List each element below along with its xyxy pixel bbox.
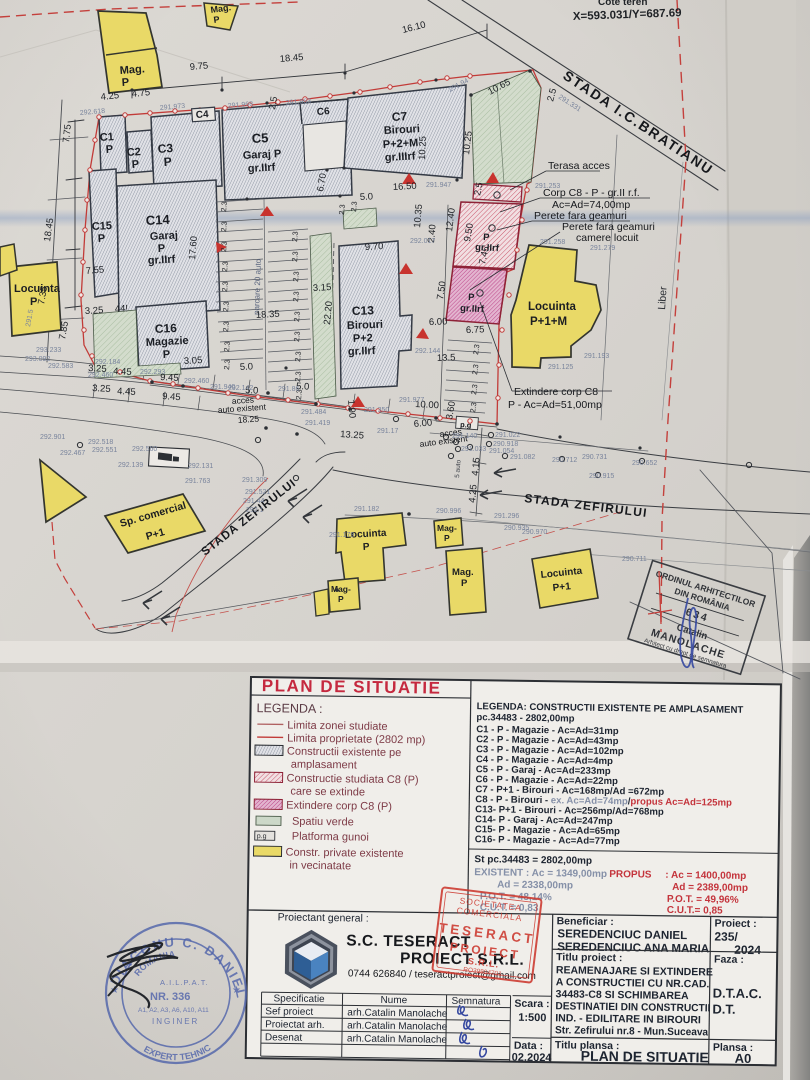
svg-text:2.3: 2.3 <box>219 241 229 252</box>
svg-text:care se extinde: care se extinde <box>290 786 365 799</box>
svg-text:Desenat: Desenat <box>265 1032 303 1044</box>
svg-text:P: P <box>338 594 344 604</box>
svg-text:291.296: 291.296 <box>494 513 519 520</box>
svg-text:P: P <box>131 159 139 171</box>
svg-text:P+1: P+1 <box>552 581 572 594</box>
svg-text:291.279: 291.279 <box>590 245 615 252</box>
svg-text:17.60: 17.60 <box>187 236 200 261</box>
svg-text:2.3: 2.3 <box>291 291 301 302</box>
svg-text:292.901: 292.901 <box>40 434 65 441</box>
svg-text:Spatiu verde: Spatiu verde <box>292 816 354 829</box>
svg-text:290.918: 290.918 <box>493 441 518 448</box>
svg-text:2.3: 2.3 <box>290 251 300 262</box>
svg-text:293.092: 293.092 <box>25 356 50 363</box>
svg-text:Data :: Data : <box>514 1040 543 1052</box>
svg-text:★: ★ <box>232 985 241 996</box>
svg-text:gr.IIrf: gr.IIrf <box>348 345 376 358</box>
svg-text:C.U.T.= 0,85: C.U.T.= 0,85 <box>667 905 723 917</box>
svg-text:291.521: 291.521 <box>245 489 270 496</box>
svg-text:Beneficiar :: Beneficiar : <box>557 915 614 928</box>
svg-text:C13: C13 <box>352 303 375 318</box>
svg-text:292.144: 292.144 <box>415 348 440 355</box>
svg-text:2.3: 2.3 <box>470 364 480 376</box>
svg-text:290.652: 290.652 <box>632 460 657 467</box>
svg-text:291.258: 291.258 <box>540 239 565 246</box>
svg-text:Mag.: Mag. <box>452 567 474 578</box>
svg-text:292.560: 292.560 <box>132 446 157 453</box>
svg-text:4.45: 4.45 <box>113 366 132 378</box>
svg-text:2.3: 2.3 <box>469 384 479 396</box>
svg-text:2.3: 2.3 <box>293 371 303 382</box>
svg-text:290.711: 290.711 <box>622 556 647 563</box>
svg-text:291.17: 291.17 <box>377 428 399 435</box>
svg-text:P - Ac=Ad=51,00mp: P - Ac=Ad=51,00mp <box>508 399 602 411</box>
svg-text:4.45: 4.45 <box>117 386 136 398</box>
svg-text:9.45: 9.45 <box>162 391 181 403</box>
svg-text:292.583: 292.583 <box>48 363 73 370</box>
svg-text:291.179: 291.179 <box>329 532 354 539</box>
svg-text:291.309: 291.309 <box>242 477 267 484</box>
svg-text:3.25: 3.25 <box>92 383 111 395</box>
svg-text:gr.IIrf: gr.IIrf <box>148 254 176 267</box>
svg-text:P: P <box>461 578 468 589</box>
svg-text:Proiectat arh.: Proiectat arh. <box>265 1019 325 1031</box>
svg-text:291.419: 291.419 <box>305 420 330 427</box>
svg-text:292.1: 292.1 <box>246 507 264 514</box>
svg-text:P+1+M: P+1+M <box>530 316 567 328</box>
svg-text:2.3: 2.3 <box>219 221 229 232</box>
svg-text:10.35: 10.35 <box>412 204 425 229</box>
svg-text:Magazie: Magazie <box>146 335 189 349</box>
svg-text:gr.IIIrf: gr.IIIrf <box>385 150 416 164</box>
svg-text:pc.34483 - 2802,00mp: pc.34483 - 2802,00mp <box>476 712 574 724</box>
svg-text:Limita zonei studiate: Limita zonei studiate <box>287 720 387 733</box>
svg-text:291.033: 291.033 <box>461 446 486 453</box>
svg-text:290.970: 290.970 <box>522 529 547 536</box>
svg-text:arh.Catalin Manolache: arh.Catalin Manolache <box>347 1020 448 1032</box>
svg-text:2.3: 2.3 <box>337 204 347 215</box>
svg-text:6.00: 6.00 <box>413 417 432 430</box>
svg-text:2.3: 2.3 <box>220 281 230 292</box>
svg-text:291.977: 291.977 <box>399 397 424 404</box>
svg-text:PROPUS: PROPUS <box>609 869 652 881</box>
svg-text:2.3: 2.3 <box>293 351 303 362</box>
svg-text:C16- P - Magazie - Ac=Ad=77mp: C16- P - Magazie - Ac=Ad=77mp <box>475 834 620 847</box>
svg-text:INGINER: INGINER <box>152 1017 199 1026</box>
svg-text:2.3: 2.3 <box>221 321 231 332</box>
svg-text:2.3: 2.3 <box>219 201 229 212</box>
svg-text:3.25: 3.25 <box>85 305 104 317</box>
svg-text:Cote teren: Cote teren <box>598 0 647 8</box>
svg-text:291.182: 291.182 <box>354 506 379 513</box>
svg-text:2.3: 2.3 <box>221 301 231 312</box>
svg-text:LEGENDA :: LEGENDA : <box>256 701 322 716</box>
svg-text:291.022: 291.022 <box>495 432 520 439</box>
svg-text:PLAN DE SITUATIE: PLAN DE SITUATIE <box>262 676 442 698</box>
svg-text:18.25: 18.25 <box>237 414 259 425</box>
svg-text:290.915: 290.915 <box>589 473 614 480</box>
svg-text:Ad = 2338,00mp: Ad = 2338,00mp <box>497 879 573 891</box>
svg-text:292.460: 292.460 <box>184 378 209 385</box>
svg-text:D.T.A.C.: D.T.A.C. <box>713 985 762 1001</box>
svg-text:5.0: 5.0 <box>240 361 254 373</box>
svg-text:Proiect :: Proiect : <box>715 917 757 930</box>
svg-text:291.350: 291.350 <box>364 407 389 414</box>
svg-text:292.467: 292.467 <box>60 450 85 457</box>
svg-text:5.0: 5.0 <box>360 191 374 203</box>
svg-text:C2: C2 <box>126 146 141 159</box>
svg-text:Str. Zefirului nr.8 - Mun.Suce: Str. Zefirului nr.8 - Mun.Suceava <box>555 1024 708 1038</box>
svg-text:291.763: 291.763 <box>185 478 210 485</box>
svg-text:Scara :: Scara : <box>514 998 549 1010</box>
svg-text:A0: A0 <box>735 1051 752 1066</box>
svg-text:290.996: 290.996 <box>436 508 461 515</box>
svg-text:p.g: p.g <box>257 833 267 840</box>
svg-text:Locuinta: Locuinta <box>528 301 577 313</box>
svg-text:P: P <box>121 77 129 89</box>
svg-text:291.125: 291.125 <box>548 364 573 371</box>
svg-text:2.3: 2.3 <box>291 271 301 282</box>
svg-text:2.3: 2.3 <box>292 311 302 322</box>
svg-text:Mag.: Mag. <box>119 63 145 77</box>
svg-text:C16: C16 <box>154 321 177 336</box>
svg-text:291.484: 291.484 <box>301 409 326 416</box>
svg-text:292.017: 292.017 <box>410 238 435 245</box>
svg-text:2.3: 2.3 <box>292 331 302 342</box>
svg-text:P: P <box>163 154 172 169</box>
svg-text:Sef proiect: Sef proiect <box>265 1006 313 1018</box>
svg-text:SEREDENCIUC DANIEL: SEREDENCIUC DANIEL <box>557 928 687 942</box>
svg-text:p.g: p.g <box>460 420 472 430</box>
svg-text:9.70: 9.70 <box>365 241 384 253</box>
svg-text:camere locuit: camere locuit <box>576 232 639 244</box>
svg-text:EXISTENT : Ac = 1349,00mp: EXISTENT : Ac = 1349,00mp <box>474 867 607 880</box>
svg-text:3.05: 3.05 <box>184 355 203 367</box>
svg-text:Extindere corp C8 (P): Extindere corp C8 (P) <box>286 800 392 813</box>
svg-text:292.293: 292.293 <box>140 369 165 376</box>
svg-text:Specificatie: Specificatie <box>273 993 325 1005</box>
svg-text:in vecinatate: in vecinatate <box>289 860 351 873</box>
svg-text:gr.IIrf: gr.IIrf <box>248 162 276 175</box>
svg-text:arh.Catalin Manolache: arh.Catalin Manolache <box>347 1033 448 1045</box>
svg-text:2.3: 2.3 <box>349 201 359 212</box>
svg-text:Mag-: Mag- <box>437 523 457 533</box>
svg-text:amplasament: amplasament <box>291 759 357 772</box>
svg-text:2.3: 2.3 <box>222 359 232 370</box>
svg-text:292.139: 292.139 <box>118 462 143 469</box>
svg-text:P+2+M: P+2+M <box>383 137 419 151</box>
svg-text:NR. 336: NR. 336 <box>150 991 190 1003</box>
svg-text:PLAN DE SITUATIE: PLAN DE SITUATIE <box>581 1048 709 1066</box>
svg-text:C14: C14 <box>145 212 170 228</box>
svg-text:Titlu proiect :: Titlu proiect : <box>556 951 622 964</box>
svg-text:13.25: 13.25 <box>340 429 364 442</box>
svg-text:Terasa acces: Terasa acces <box>548 160 610 172</box>
svg-text:P: P <box>163 349 171 361</box>
svg-text:Birouri: Birouri <box>384 123 421 137</box>
svg-text:C7: C7 <box>391 109 407 124</box>
svg-text:P: P <box>363 542 371 553</box>
svg-text:Garaj P: Garaj P <box>243 148 282 162</box>
svg-text:: Ac = 1400,00mp: : Ac = 1400,00mp <box>665 870 746 882</box>
svg-text:C4: C4 <box>195 109 209 121</box>
svg-text:A.I.L.P.A.T.: A.I.L.P.A.T. <box>160 978 209 987</box>
svg-text:291.253: 291.253 <box>535 183 560 190</box>
svg-text:291.86: 291.86 <box>278 386 300 393</box>
svg-text:9.75: 9.75 <box>189 60 208 73</box>
svg-text:18.45: 18.45 <box>279 52 304 65</box>
svg-text:1:500: 1:500 <box>518 1012 546 1024</box>
svg-text:★: ★ <box>110 985 119 996</box>
svg-text:4.15: 4.15 <box>470 457 483 476</box>
svg-text:Liber: Liber <box>656 286 670 311</box>
svg-text:2.3: 2.3 <box>471 344 481 356</box>
svg-text:Ad = 2389,00mp: Ad = 2389,00mp <box>672 882 748 894</box>
svg-text:P+2: P+2 <box>353 332 373 345</box>
svg-text:290.731: 290.731 <box>582 454 607 461</box>
svg-text:4.25: 4.25 <box>467 484 480 503</box>
svg-text:2.3: 2.3 <box>468 402 478 414</box>
svg-text:292.551: 292.551 <box>92 447 117 454</box>
svg-text:16.50: 16.50 <box>393 181 417 193</box>
svg-text:C1: C1 <box>99 131 114 144</box>
svg-text:Extindere corp C8: Extindere corp C8 <box>514 386 598 398</box>
svg-text:291.940: 291.940 <box>210 384 235 391</box>
svg-text:Constr. private existente: Constr. private existente <box>285 847 403 861</box>
svg-text:Constructie studiata C8 (P): Constructie studiata C8 (P) <box>287 773 419 787</box>
svg-text:C3: C3 <box>157 141 174 156</box>
svg-text:P: P <box>98 233 106 245</box>
svg-text:10.25: 10.25 <box>417 136 429 160</box>
svg-text:4.25: 4.25 <box>100 90 120 103</box>
svg-text:Faza :: Faza : <box>714 953 744 965</box>
svg-text:291.140: 291.140 <box>452 433 477 440</box>
svg-text:Mag-: Mag- <box>331 584 351 594</box>
svg-text:235/: 235/ <box>714 929 738 943</box>
svg-text:2.5: 2.5 <box>267 96 280 111</box>
svg-text:292.131: 292.131 <box>188 463 213 470</box>
svg-text:arh.Catalin Manolache: arh.Catalin Manolache <box>347 1007 448 1019</box>
svg-text:St pc.34483 = 2802,00mp: St pc.34483 = 2802,00mp <box>474 854 592 867</box>
svg-text:292.460: 292.460 <box>88 372 113 379</box>
svg-text:4.75: 4.75 <box>131 87 151 100</box>
svg-text:C5: C5 <box>251 130 268 146</box>
svg-text:P: P <box>158 243 166 255</box>
svg-text:291.947: 291.947 <box>426 182 451 189</box>
svg-text:291.44: 291.44 <box>243 498 265 505</box>
svg-text:P: P <box>105 144 113 156</box>
svg-text:C6: C6 <box>316 106 330 118</box>
svg-text:D.T.: D.T. <box>712 1001 735 1016</box>
svg-text:P: P <box>444 533 450 543</box>
svg-text:290.712: 290.712 <box>552 457 577 464</box>
svg-text:1.90: 1.90 <box>345 399 358 418</box>
svg-text:C15: C15 <box>92 220 113 233</box>
svg-text:Constructii existente pe: Constructii existente pe <box>287 746 402 760</box>
svg-text:292.518: 292.518 <box>88 439 113 446</box>
svg-text:3.15: 3.15 <box>313 282 332 294</box>
svg-text:291.082: 291.082 <box>510 454 535 461</box>
svg-text:2.3: 2.3 <box>222 341 232 352</box>
svg-text:2.3: 2.3 <box>290 231 300 242</box>
svg-text:6.75: 6.75 <box>466 324 485 336</box>
svg-text:7.55: 7.55 <box>85 264 104 277</box>
svg-text:7.75: 7.75 <box>61 124 74 144</box>
svg-text:44!: 44! <box>115 303 129 315</box>
svg-text:18.35: 18.35 <box>256 309 280 321</box>
svg-text:Limita proprietate (2802 mp): Limita proprietate (2802 mp) <box>287 733 425 747</box>
svg-text:291.193: 291.193 <box>584 353 609 360</box>
svg-text:Proiectant general :: Proiectant general : <box>278 911 369 924</box>
svg-text:6.00: 6.00 <box>429 316 448 328</box>
svg-text:Garaj: Garaj <box>150 230 179 243</box>
svg-text:293.233: 293.233 <box>36 347 61 354</box>
svg-text:Nume: Nume <box>380 995 407 1006</box>
svg-text:2.3: 2.3 <box>220 261 230 272</box>
svg-text:292.184: 292.184 <box>95 359 120 366</box>
svg-text:Birouri: Birouri <box>347 319 383 332</box>
svg-text:Platforma gunoi: Platforma gunoi <box>292 831 369 844</box>
svg-text:22.20: 22.20 <box>322 301 335 326</box>
